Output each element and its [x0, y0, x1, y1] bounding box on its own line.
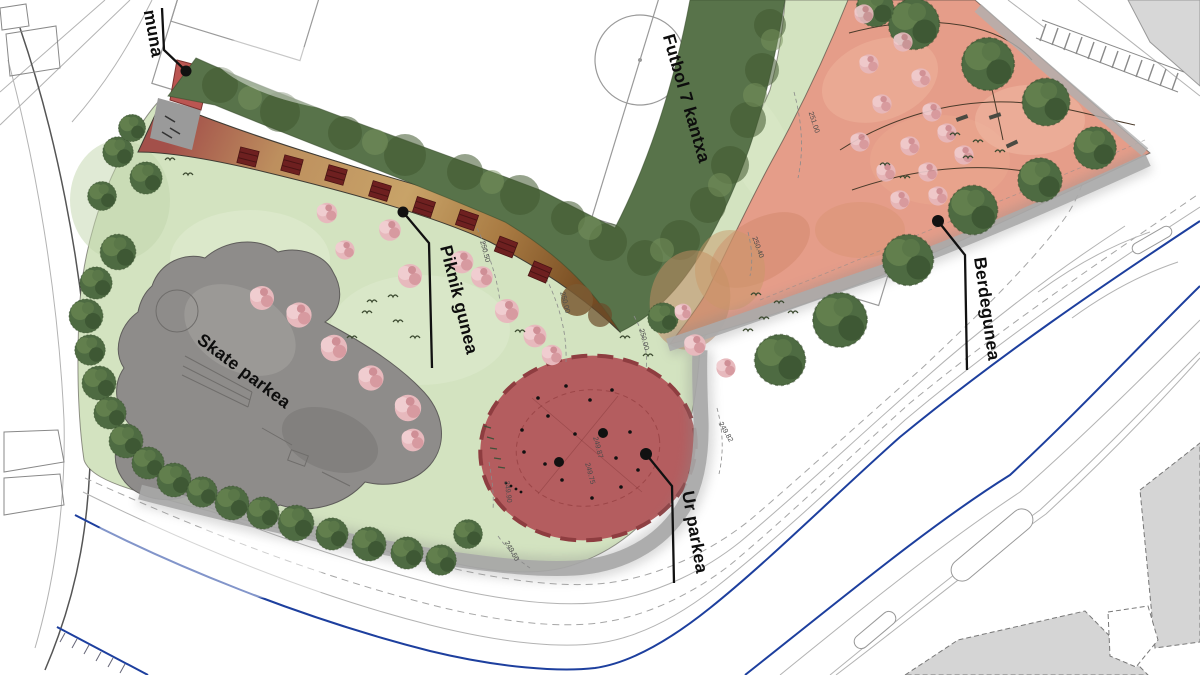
tree [883, 235, 934, 286]
building [1108, 606, 1158, 667]
blossom-tree [900, 136, 919, 155]
tree [80, 267, 112, 299]
blossom-tree [335, 240, 354, 259]
traffic-island [1130, 224, 1174, 256]
tree [88, 182, 117, 211]
label-water-park: Ur parkea [678, 489, 712, 575]
blossom-tree [954, 145, 973, 164]
contour-label: 249.82 [717, 420, 736, 444]
tree [82, 366, 116, 400]
tree [215, 486, 249, 520]
blossom-tree [358, 365, 383, 390]
label-green-zone: Berdegunea [970, 256, 1004, 362]
leader-dot [932, 215, 944, 227]
tree [187, 477, 218, 508]
blossom-tree [402, 429, 425, 452]
tree [94, 397, 126, 429]
tree [157, 463, 191, 497]
blossom-tree [918, 162, 937, 181]
tree [648, 303, 679, 334]
site-plan: 251.00 250.50 250.40 250.00 250.00 249.8… [0, 0, 1200, 675]
tree [103, 137, 134, 168]
blossom-tree [321, 335, 347, 361]
blossom-tree [716, 358, 735, 377]
tree [454, 520, 483, 549]
blossom-tree [250, 286, 274, 310]
label-toilet: muna [140, 8, 168, 59]
tree [278, 505, 314, 541]
context-building [4, 474, 64, 515]
tree [69, 299, 103, 333]
blossom-tree [859, 54, 878, 73]
blossom-tree [854, 4, 873, 23]
context-building [0, 4, 29, 30]
traffic-island [947, 504, 1038, 585]
blossom-tree [317, 203, 337, 223]
blossom-tree [398, 264, 422, 288]
blossom-tree [876, 162, 895, 181]
blossom-tree [850, 132, 869, 151]
blossom-tree [542, 345, 562, 365]
tree [1022, 78, 1070, 126]
blossom-tree [872, 94, 891, 113]
blossom-tree [524, 325, 547, 348]
tree [755, 335, 806, 386]
leader-dot [640, 448, 652, 460]
blossom-tree [890, 190, 909, 209]
leader-dot [181, 66, 192, 77]
blossom-tree [893, 32, 912, 51]
tree [130, 162, 162, 194]
context-building [4, 430, 64, 472]
site-plan-drawing: 251.00 250.50 250.40 250.00 250.00 249.8… [0, 0, 1200, 675]
tree [1074, 127, 1117, 170]
tree [426, 545, 457, 576]
tree [247, 497, 279, 529]
blossom-tree [286, 302, 311, 327]
tree [352, 527, 386, 561]
tree [1018, 158, 1062, 202]
blossom-tree [379, 219, 401, 241]
blossom-tree [911, 68, 930, 87]
blossom-tree [471, 266, 493, 288]
tree [962, 38, 1015, 91]
tree [948, 185, 997, 234]
blossom-tree [684, 334, 706, 356]
tree [391, 537, 423, 569]
tree [316, 518, 348, 550]
tree [100, 234, 136, 270]
blossom-tree [395, 395, 421, 421]
blossom-tree [495, 299, 519, 323]
blossom-tree [928, 186, 947, 205]
tree [813, 293, 867, 347]
blossom-tree [675, 304, 692, 321]
tree [118, 114, 145, 141]
tree [75, 335, 106, 366]
leader-dot [398, 207, 409, 218]
blossom-tree [922, 102, 941, 121]
